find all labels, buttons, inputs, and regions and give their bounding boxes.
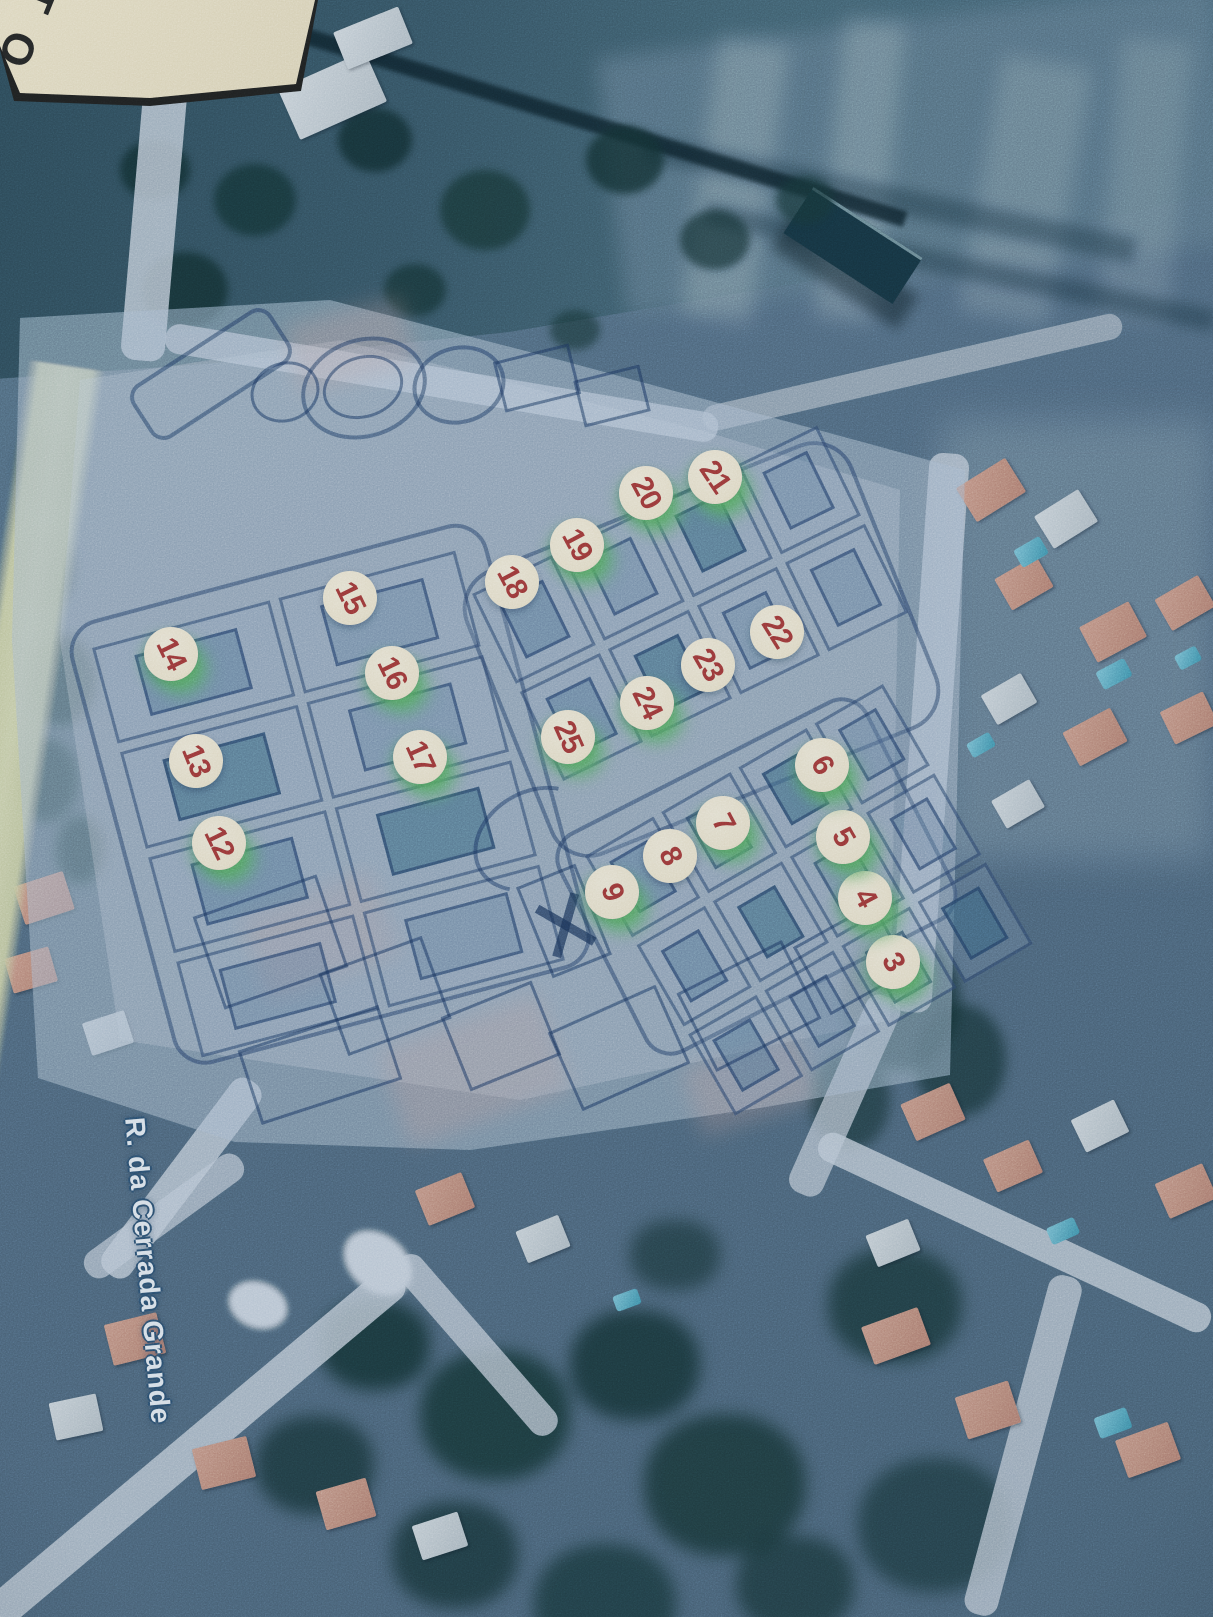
lot-marker-number: 20 <box>625 472 666 514</box>
lot-marker-number: 7 <box>706 809 740 837</box>
lot-marker-number: 15 <box>330 577 371 618</box>
lot-marker-13: 13 <box>169 734 223 788</box>
lot-marker-number: 8 <box>653 842 687 869</box>
lot-marker-number: 6 <box>805 751 839 780</box>
lot-marker-8: 8 <box>643 829 697 883</box>
house-roof <box>900 1083 966 1142</box>
lot-marker-14: 14 <box>144 627 198 681</box>
lot-marker-12: 12 <box>192 816 246 870</box>
house-roof <box>315 1478 376 1531</box>
building-footprint <box>810 548 883 627</box>
lot-marker-24: 24 <box>620 676 674 730</box>
lot-marker-number: 3 <box>876 948 910 977</box>
building-footprint <box>890 797 958 871</box>
lot-marker-23: 23 <box>681 638 735 692</box>
lot-marker-16: 16 <box>365 646 419 700</box>
lot-marker-number: 23 <box>687 644 729 686</box>
house-roof <box>415 1172 476 1226</box>
house-roof <box>1071 1099 1130 1152</box>
lot-marker-15: 15 <box>323 571 377 625</box>
photo-road <box>78 1148 249 1284</box>
house-roof <box>1155 1163 1213 1219</box>
lot-marker-22: 22 <box>750 605 804 659</box>
house-roof <box>861 1307 931 1365</box>
lot-marker-number: 13 <box>176 741 216 781</box>
lot-marker-7: 7 <box>696 796 750 850</box>
swimming-pool <box>1093 1407 1132 1439</box>
lot-marker-number: 25 <box>548 717 588 758</box>
lot-marker-4: 4 <box>838 871 892 925</box>
lot-marker-number: 22 <box>756 611 798 654</box>
lot-marker-number: 12 <box>199 822 240 863</box>
lot-marker-6: 6 <box>795 738 849 792</box>
lot-marker-25: 25 <box>541 710 595 764</box>
lot-marker-21: 21 <box>688 450 742 504</box>
lot-marker-number: 14 <box>151 633 192 674</box>
photo-road <box>700 311 1125 433</box>
lot-marker-number: 17 <box>400 737 440 778</box>
lot-marker-number: 16 <box>372 652 413 693</box>
lot-marker-number: 9 <box>595 879 629 904</box>
lot-marker-3: 3 <box>866 935 920 989</box>
aerial-photo: R. da Cerrada Grande 3456789121314151617… <box>0 0 1213 1617</box>
house-roof <box>412 1511 469 1560</box>
building-footprint <box>674 493 747 572</box>
building-footprint <box>762 450 835 529</box>
lot-marker-18: 18 <box>485 555 539 609</box>
house-roof <box>865 1219 920 1268</box>
lot-marker-number: 4 <box>848 884 882 912</box>
photo-road <box>0 1262 411 1617</box>
lot-marker-number: 5 <box>826 823 860 852</box>
photo-road <box>961 1272 1084 1617</box>
building-footprint <box>941 886 1009 960</box>
lot-marker-19: 19 <box>550 518 604 572</box>
lot-marker-number: 19 <box>556 524 597 566</box>
lot-marker-17: 17 <box>393 730 447 784</box>
house-roof <box>515 1215 570 1264</box>
lot-marker-9: 9 <box>585 865 639 919</box>
road-junction <box>222 1273 294 1337</box>
lot-marker-number: 18 <box>491 561 532 603</box>
house-roof <box>983 1139 1043 1192</box>
house-roof <box>49 1393 104 1440</box>
swimming-pool <box>612 1288 642 1312</box>
lot-marker-20: 20 <box>619 466 673 520</box>
lot-marker-number: 24 <box>627 682 668 723</box>
lot-marker-5: 5 <box>816 810 870 864</box>
lot-marker-number: 21 <box>694 456 736 499</box>
